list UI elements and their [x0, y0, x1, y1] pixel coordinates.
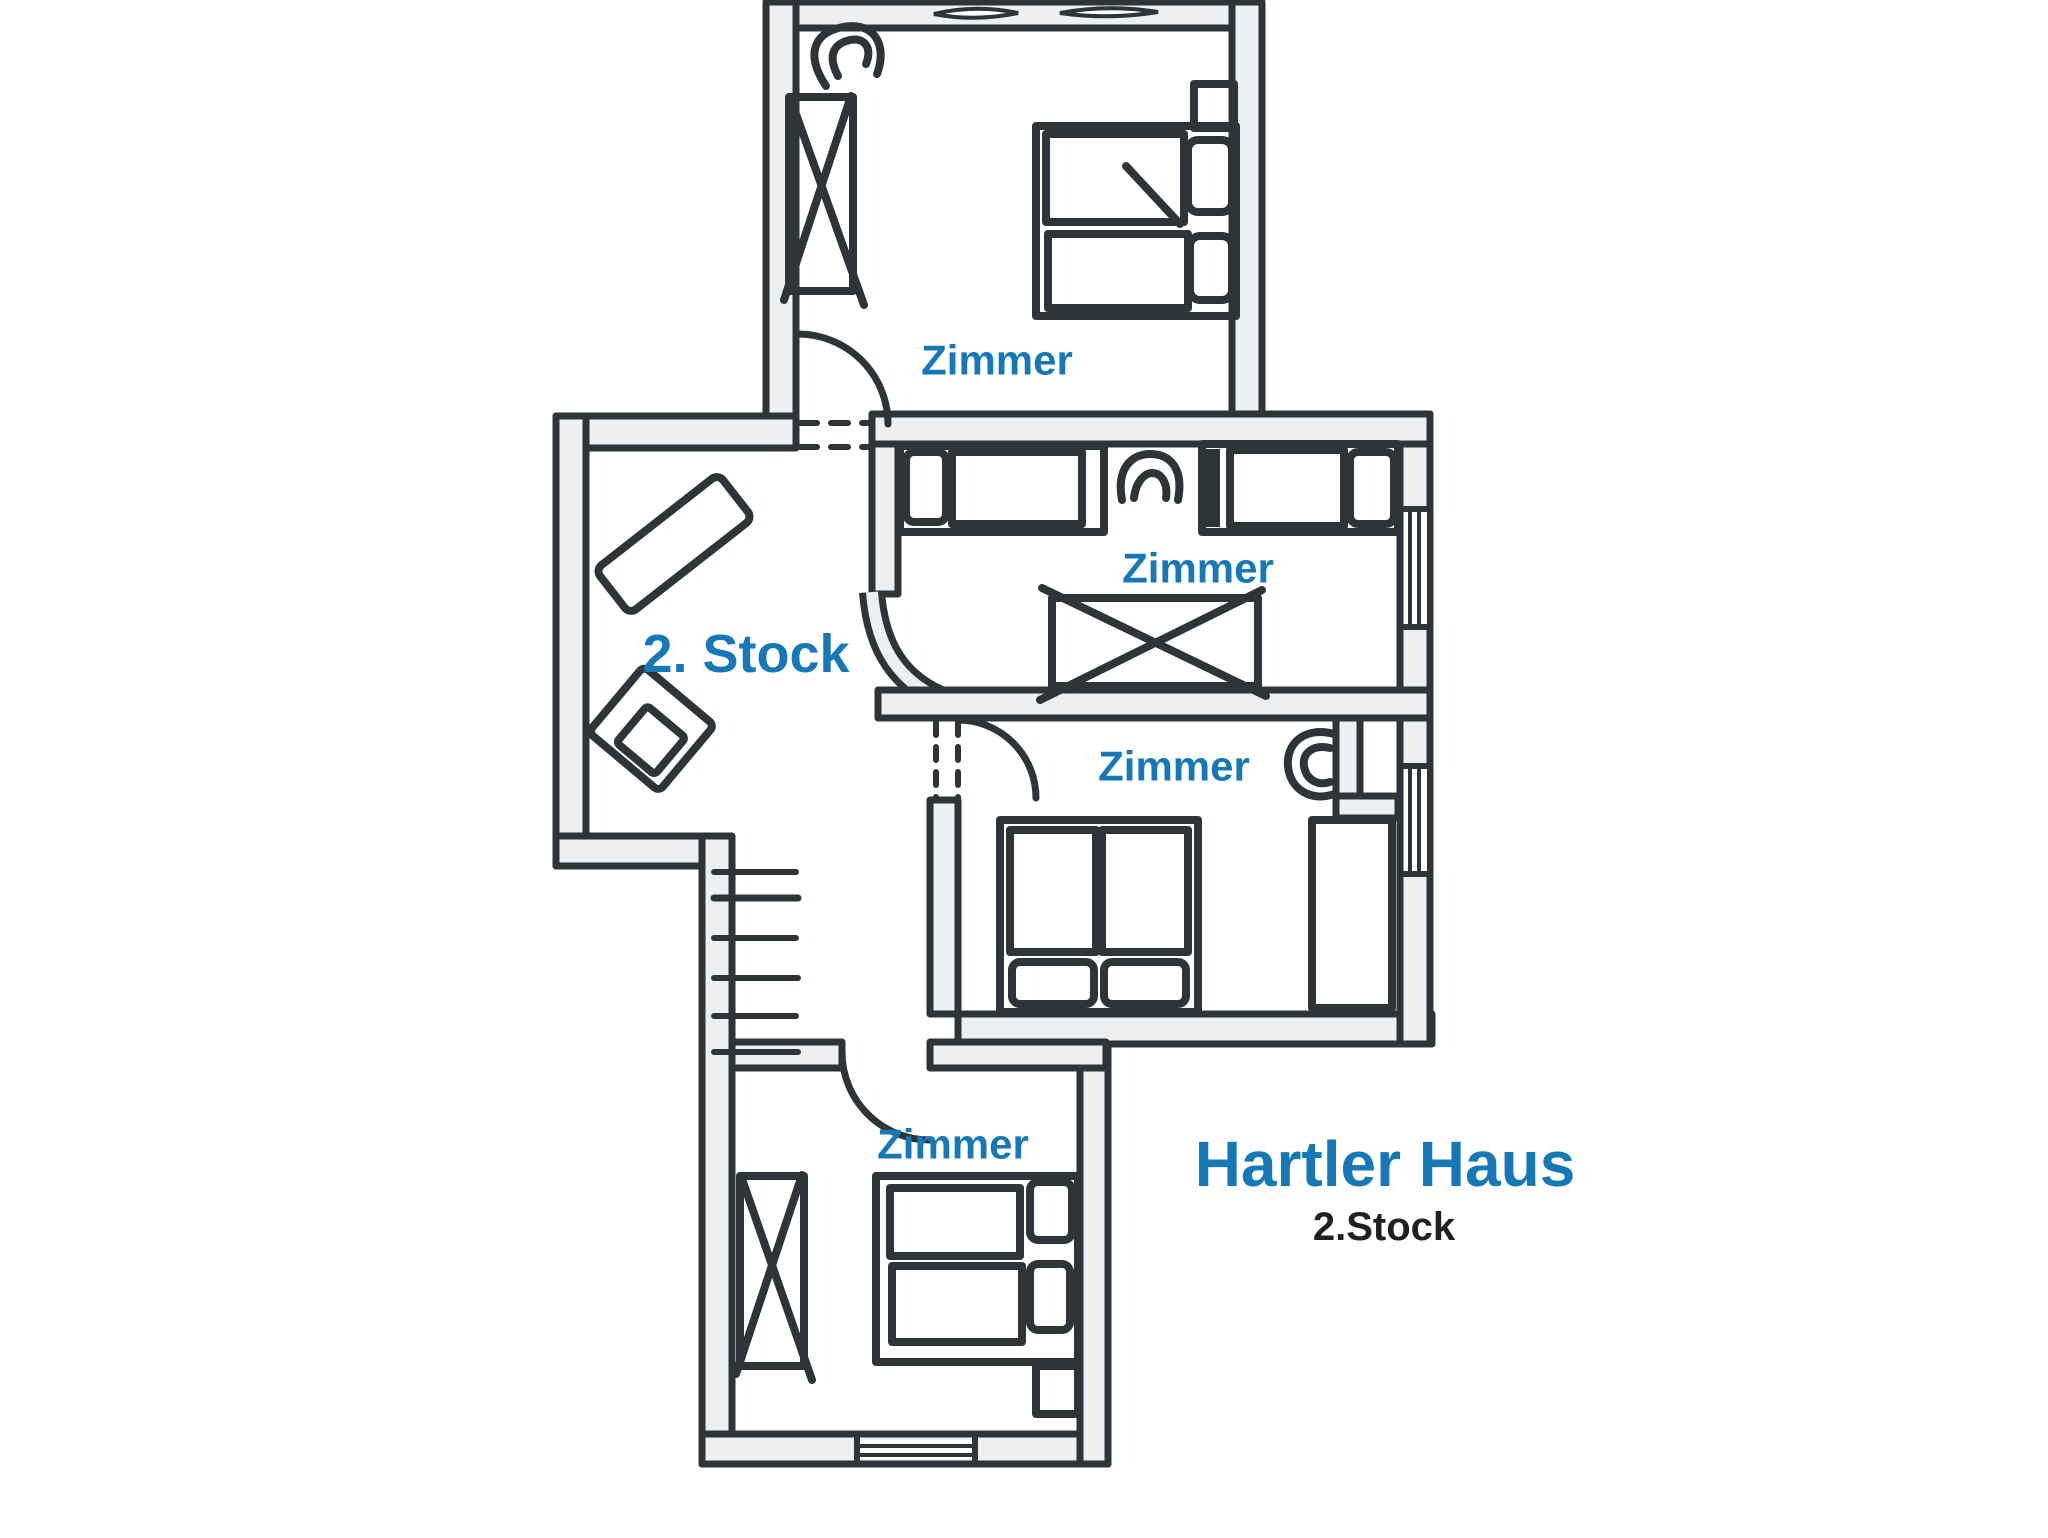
- hall-bench: [595, 474, 752, 614]
- sink-lower-right-bedroom: [1288, 732, 1334, 796]
- window-glazing: [934, 9, 1018, 18]
- bed-pillow: [1012, 962, 1094, 1004]
- bed-mattress-hatched: [1102, 830, 1188, 952]
- wall-bottom-room-top-right: [930, 1042, 1106, 1068]
- wall-west-lower: [702, 836, 732, 1464]
- sink-middle-bedroom: [1121, 454, 1180, 500]
- bed-pillow: [906, 452, 946, 522]
- wall-room2-left: [872, 444, 898, 594]
- wall-room3-left: [930, 800, 958, 1014]
- bed-pillow: [1188, 140, 1232, 212]
- hall-stool: [588, 666, 714, 791]
- sink-top-bedroom: [814, 26, 880, 86]
- bed-pillow: [1030, 1264, 1070, 1330]
- bedside-table: [1036, 1366, 1078, 1414]
- bed-mattress-hatched: [892, 1266, 1022, 1342]
- bed-mattress: [1230, 450, 1344, 526]
- plan-subtitle: 2.Stock: [1313, 1205, 1456, 1249]
- bench-outline: [595, 474, 752, 614]
- hatched-cabinet-lower-right-bedroom: [1312, 820, 1392, 1008]
- wall-sink-stub-foot: [1336, 796, 1398, 818]
- room-label-top-bedroom: Zimmer: [921, 337, 1073, 384]
- bed-double-top-bedroom: [1036, 126, 1236, 316]
- sink-bowl-icon: [833, 40, 869, 76]
- bed-mattress: [952, 452, 1082, 524]
- bed-mattress-hatched: [1010, 830, 1096, 952]
- window-middle-bedroom-east: [1400, 509, 1430, 627]
- room-label-bottom-bedroom: Zimmer: [877, 1121, 1029, 1168]
- bed-double-bottom-bedroom: [876, 1176, 1078, 1362]
- wall-shelf-niche: [1194, 84, 1234, 128]
- window-lower-right-bedroom-east: [1400, 766, 1430, 874]
- cabinet-outline: [1312, 820, 1392, 1008]
- window-opening: [1404, 767, 1427, 873]
- wall-hall-bottom: [556, 836, 712, 866]
- window-glazing: [1060, 8, 1158, 16]
- sink-bowl-icon: [1304, 747, 1330, 783]
- wall-divider-room2-room3: [878, 690, 1430, 718]
- wall-bottom-room-right: [1080, 1042, 1108, 1464]
- sink-bowl-icon: [1134, 473, 1166, 498]
- wall-sink-stub-vertical: [1336, 718, 1360, 804]
- bed-double-lower-right-bedroom: [1000, 820, 1198, 1012]
- wall-hall-left: [556, 416, 586, 866]
- bed-single-right-middle-bedroom: [1202, 444, 1398, 532]
- bed-pillow: [1190, 236, 1232, 300]
- blanket-fold-line: [1126, 166, 1180, 224]
- plan-title: Hartler Haus: [1195, 1128, 1576, 1200]
- window-bottom-room-south: [857, 1436, 975, 1463]
- bed-mattress-hatched: [890, 1188, 1020, 1256]
- wall-hall-top: [556, 416, 796, 448]
- door-swing-arc: [958, 720, 1036, 798]
- bed-pillow: [1350, 452, 1394, 524]
- door-lower-right-bedroom: [936, 720, 1036, 798]
- floor-plan-canvas: Zimmer Zimmer Zimmer Zimmer 2. Stock Har…: [0, 0, 2048, 1538]
- window-opening: [1404, 510, 1427, 626]
- bed-single-left-middle-bedroom: [900, 446, 1104, 532]
- floor-plan-page: Zimmer Zimmer Zimmer Zimmer 2. Stock Har…: [0, 0, 2048, 1538]
- bed-pillow: [1030, 1182, 1072, 1240]
- room-label-lower-right-bedroom: Zimmer: [1098, 743, 1250, 790]
- bed-headboard: [1206, 449, 1220, 527]
- crossed-table-middle-bedroom: [1040, 588, 1266, 700]
- wardrobe-x-stroke: [736, 1175, 802, 1374]
- room-label-middle-bedroom: Zimmer: [1122, 545, 1274, 592]
- bed-pillow: [1104, 962, 1186, 1004]
- bed-mattress-hatched: [1048, 234, 1188, 308]
- wall-room2-top: [872, 414, 1430, 444]
- floor-label: 2. Stock: [642, 624, 850, 684]
- wardrobe-bottom-bedroom: [736, 1175, 812, 1380]
